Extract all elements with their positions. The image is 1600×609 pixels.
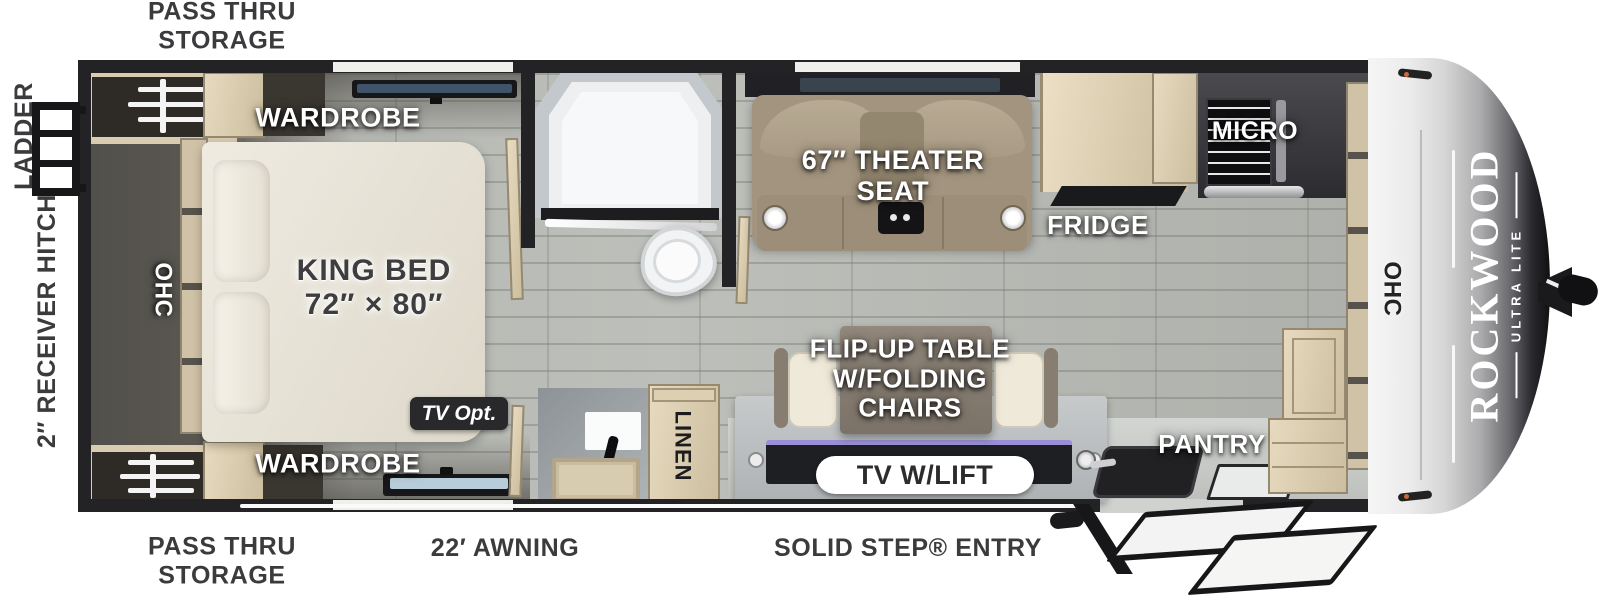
hanger-rod (128, 488, 194, 493)
linen-label: LINEN (670, 411, 695, 482)
cabinet-knob (748, 452, 764, 468)
receiver-hitch-label: 2″ RECEIVER HITCH (33, 194, 62, 448)
ladder-label: LADDER (10, 82, 39, 190)
cap-highlight (1452, 150, 1455, 268)
pantry-drawer-line (1272, 466, 1344, 468)
front-ohc-label: OHC (1378, 261, 1405, 316)
oven-handle-bar (1204, 186, 1304, 198)
marker-light-lens (1404, 72, 1409, 77)
folding-chair-arm (1044, 348, 1058, 428)
theater-window (800, 78, 1000, 92)
awning-rail (240, 504, 1085, 508)
pantry-drawer-line (1272, 442, 1344, 444)
vanity-sink (552, 458, 640, 502)
hanger-rod (120, 474, 200, 479)
shower-pan-inner (562, 92, 698, 204)
hanger-rod (138, 117, 210, 122)
linen-cabinet-lid (652, 388, 716, 402)
fridge-label: FRIDGE (1047, 211, 1149, 241)
tv-lift-label: TV W/LIFT (857, 460, 993, 491)
tv-opt-badge: TV Opt. (410, 397, 508, 430)
recliner-control-panel (878, 202, 924, 234)
brand-wordmark: ROCKWOOD (1461, 147, 1508, 422)
wardrobe-label-top: WARDROBE (255, 103, 420, 134)
hanger-rod (128, 102, 214, 107)
cap-seam (1420, 130, 1422, 480)
bedroom-ohc-label: OHC (149, 262, 176, 317)
ladder-icon (32, 102, 80, 196)
tv-lift-pill: TV W/LIFT (816, 456, 1034, 494)
ladder-mount (72, 184, 86, 192)
bedroom-tv-screen (390, 478, 508, 489)
brand-subtitle-text: ULTRA LITE (1509, 228, 1524, 342)
marker-light-lens (1404, 494, 1409, 499)
ladder-rung (38, 130, 76, 137)
slide-edge (333, 62, 513, 72)
pillow (213, 160, 270, 282)
pantry-label: PANTRY (1158, 430, 1266, 460)
floorplan-canvas: TV Opt. (0, 0, 1600, 609)
window-shade-nub (430, 98, 442, 104)
pass-thru-cubby-bottom (85, 445, 215, 507)
theater-seat-label: 67″ THEATER SEAT (802, 145, 985, 207)
pass-thru-storage-label-bottom: PASS THRU STORAGE (148, 533, 296, 590)
tv-stand-nub (440, 467, 453, 475)
wardrobe-label-bottom: WARDROBE (255, 449, 420, 480)
brand-rule (1515, 172, 1517, 218)
pantry-cabinet-lower (1268, 418, 1348, 494)
slide-edge (795, 62, 1020, 72)
tv-opt-label: TV Opt. (422, 402, 497, 426)
awning-label: 22′ AWNING (431, 534, 580, 563)
pass-thru-storage-label-top: PASS THRU STORAGE (148, 0, 296, 55)
ladder-mount (72, 106, 86, 114)
cap-highlight (1452, 345, 1455, 463)
hanger-rod (138, 87, 210, 92)
flip-up-table-label: FLIP-UP TABLE W/FOLDING CHAIRS (780, 335, 1040, 424)
top-wall (78, 60, 1370, 73)
bath-wall-right (722, 72, 736, 287)
recliner-button (903, 214, 910, 221)
solid-step-entry-label: SOLID STEP® ENTRY (774, 534, 1042, 563)
cupholder (1000, 205, 1026, 231)
kitchen-upper-cabinet (1152, 72, 1198, 184)
recliner-button (890, 214, 897, 221)
cupholder (762, 205, 788, 231)
fridge-cabinet-base (1050, 186, 1187, 206)
bedroom-window-glass (357, 84, 512, 93)
hanger-pole (160, 79, 166, 133)
king-bed-label: KING BED 72″ × 80″ (297, 254, 452, 322)
pantry-door-panel (1292, 338, 1336, 414)
pillow (213, 292, 270, 414)
shower-door-track (541, 208, 719, 220)
micro-label: MICRO (1212, 117, 1298, 146)
hanger-pole (150, 454, 156, 498)
hanger-rod (128, 460, 194, 465)
bath-wall-left (521, 72, 535, 248)
ladder-rung (38, 160, 76, 167)
brand-rule (1515, 352, 1517, 398)
brand-subtitle: ULTRA LITE (1509, 172, 1524, 398)
